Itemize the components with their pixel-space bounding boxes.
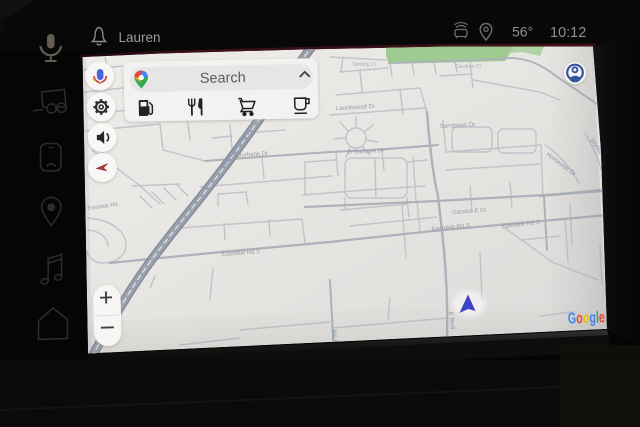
- svg-text:Search: Search: [200, 70, 246, 87]
- svg-text:Carefree Ct: Carefree Ct: [455, 64, 481, 70]
- svg-text:Google: Google: [568, 309, 606, 327]
- svg-text:Lauren: Lauren: [119, 30, 161, 45]
- svg-text:56°: 56°: [512, 24, 533, 40]
- svg-text:Tanding Ct: Tanding Ct: [352, 62, 377, 68]
- svg-text:10:12: 10:12: [550, 25, 586, 41]
